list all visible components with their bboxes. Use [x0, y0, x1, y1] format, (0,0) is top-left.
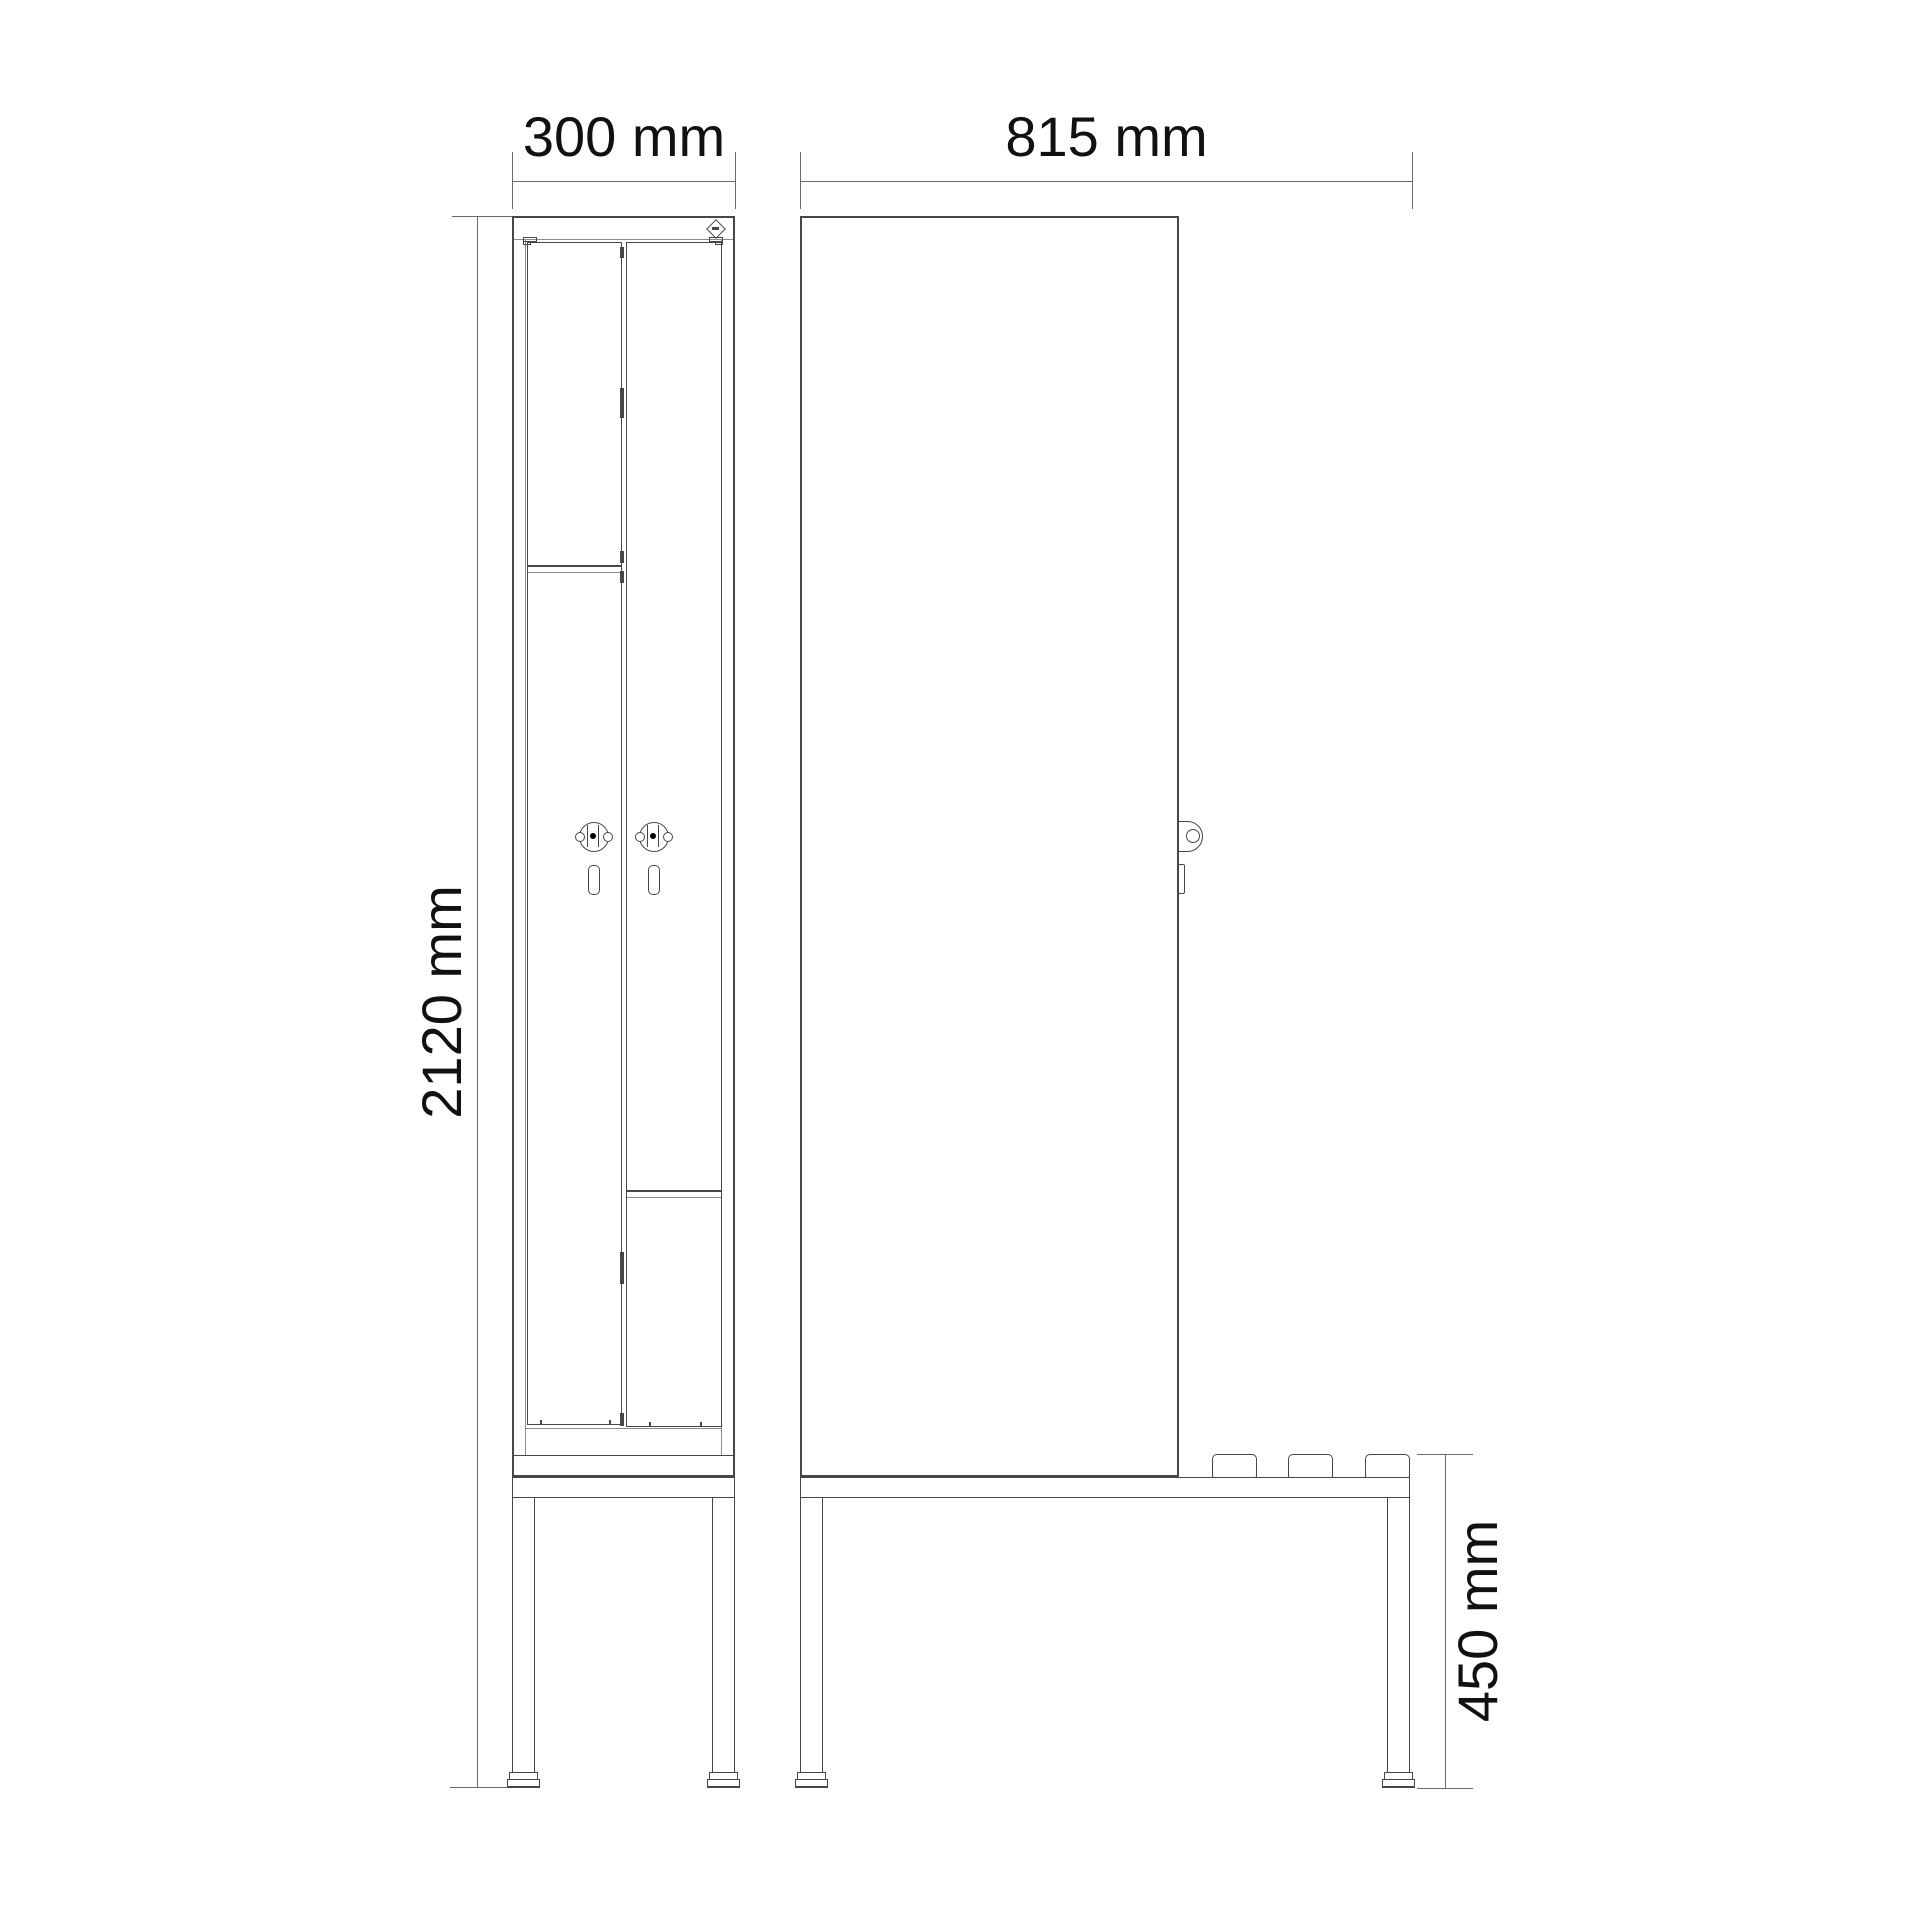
handle-slot-icon [588, 865, 600, 895]
bench-rail-front [512, 1477, 735, 1498]
door-bottom-tick [609, 1420, 611, 1425]
leveling-foot [507, 1779, 540, 1788]
lock-notch [663, 832, 673, 842]
brand-logo-mark [712, 227, 719, 230]
dimension-label-front-width: 300 mm [512, 106, 736, 168]
door-latch-tab [620, 1413, 624, 1426]
handle-slot-side-icon [1178, 864, 1185, 894]
bench-leg [800, 1497, 823, 1773]
extension-line [450, 1787, 510, 1788]
leveling-foot [1382, 1779, 1415, 1788]
extension-line [452, 216, 512, 217]
left-wall-inner-line [525, 239, 526, 1456]
technical-drawing-canvas: 300 mm 815 mm 2120 mm 450 mm [0, 0, 1920, 1920]
bench-slat [1365, 1454, 1410, 1478]
door-bottom-tick [700, 1422, 702, 1427]
dimension-line [477, 216, 478, 1788]
leveling-foot [707, 1779, 740, 1788]
lock-cylinder-circle [1186, 829, 1200, 843]
lock-notch [603, 832, 613, 842]
door-latch-tab [620, 388, 624, 418]
door-latch-tab [620, 551, 624, 563]
bench-leg [512, 1497, 535, 1773]
dimension-label-overall-height: 2120 mm [411, 802, 473, 1202]
lock-notch [575, 832, 585, 842]
lock-keyhole-dot [650, 833, 656, 839]
door-latch-tab [620, 247, 624, 258]
bench-slat-front [512, 1455, 735, 1478]
door-bottom-tick [649, 1422, 651, 1427]
right-door-divider [627, 1190, 721, 1192]
door-bottom-tick [540, 1420, 542, 1425]
right-door-divider-inner [627, 1197, 721, 1198]
door-latch-tab [620, 1252, 624, 1284]
bench-leg [712, 1497, 735, 1773]
bench-slat [1288, 1454, 1333, 1478]
top-rail-inner-line [514, 239, 733, 240]
lock-cylinder-line [647, 825, 648, 847]
handle-slot-icon [648, 865, 660, 895]
door-latch-tab [620, 571, 624, 583]
leveling-foot [795, 1779, 828, 1788]
bottom-panel-line [525, 1428, 722, 1429]
lock-cylinder-line [658, 825, 659, 847]
dimension-label-bench-height: 450 mm [1447, 1421, 1509, 1821]
lock-cylinder-line [598, 825, 599, 847]
bench-slat [1212, 1454, 1257, 1478]
lock-keyhole-dot [590, 833, 596, 839]
left-door-divider-inner [528, 572, 621, 573]
dimension-line [512, 181, 736, 182]
side-locker-body [800, 216, 1179, 1477]
bench-rail-side [800, 1477, 1410, 1498]
bench-leg [1387, 1497, 1410, 1773]
left-door-divider [528, 565, 621, 567]
dimension-line [800, 181, 1413, 182]
dimension-label-side-depth: 815 mm [800, 106, 1413, 168]
lock-notch [635, 832, 645, 842]
lock-cylinder-line [587, 825, 588, 847]
